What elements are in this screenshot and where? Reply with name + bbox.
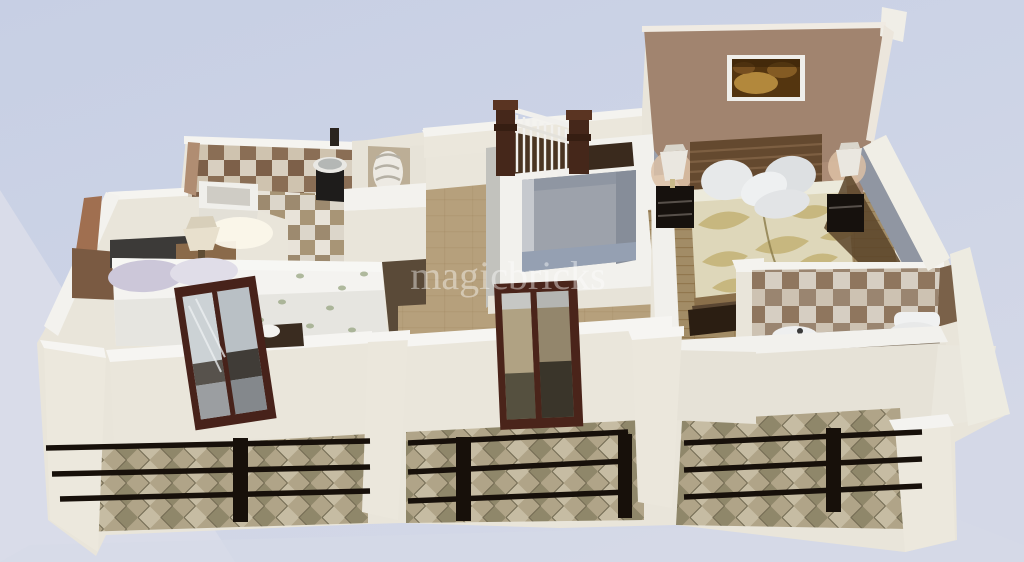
svg-text:magicbricks: magicbricks	[410, 253, 606, 298]
